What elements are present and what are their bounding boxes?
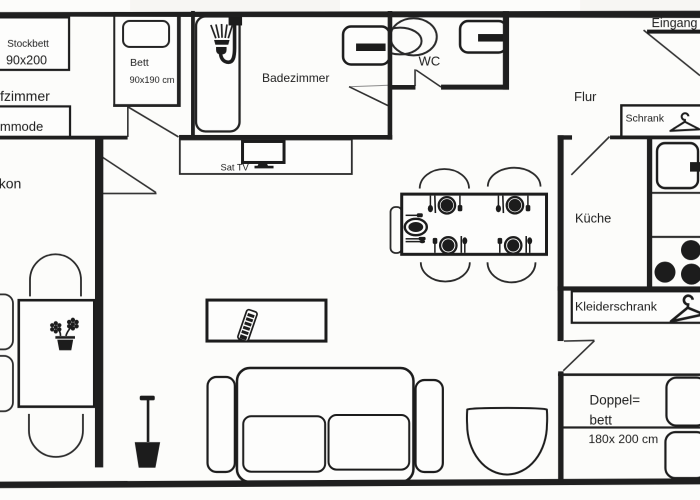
svg-text:90x190 cm: 90x190 cm [130,75,175,85]
svg-text:bett: bett [589,413,612,428]
svg-text:Schrank: Schrank [626,113,665,125]
svg-text:Kommode: Kommode [0,119,43,134]
svg-text:Sat TV: Sat TV [221,162,250,172]
svg-text:Kleiderschrank: Kleiderschrank [575,300,658,314]
svg-text:Badezimmer: Badezimmer [262,71,329,85]
svg-text:90x200: 90x200 [6,53,47,67]
svg-text:Flur: Flur [574,89,597,104]
svg-text:Stockbett: Stockbett [7,39,49,50]
svg-text:Schlafzimmer: Schlafzimmer [0,88,50,104]
svg-text:Bett: Bett [130,57,149,69]
svg-text:Doppel=: Doppel= [589,393,640,408]
svg-text:WC: WC [419,54,441,69]
svg-text:Balkon: Balkon [0,175,21,191]
svg-text:Küche: Küche [575,211,611,226]
svg-text:Eingang: Eingang [652,16,698,30]
svg-text:180x 200 cm: 180x 200 cm [588,432,658,446]
